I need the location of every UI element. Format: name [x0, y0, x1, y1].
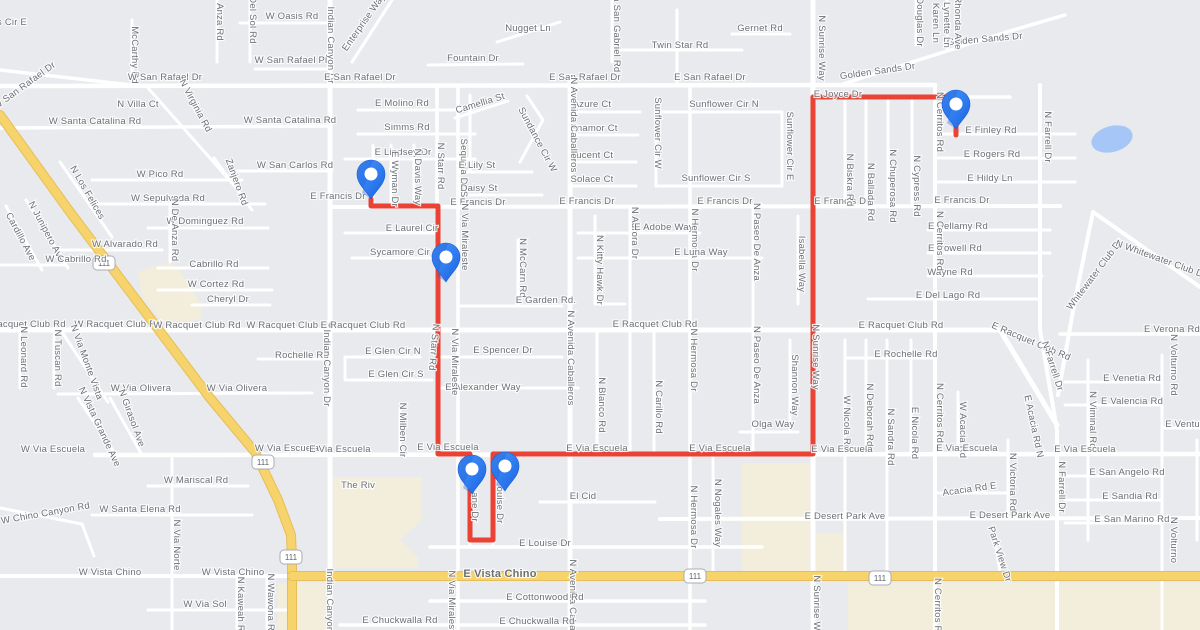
street-label: N Starr Rd [435, 143, 446, 190]
street-label: N Carillo Rd [653, 380, 664, 434]
pin-hole-icon [950, 98, 963, 111]
street-label: W Pico Rd [137, 169, 184, 180]
street-label: Acacia Rd E [942, 480, 997, 498]
street-label: E Rochelle Rd [874, 349, 937, 360]
highway-shield: 111 [280, 550, 302, 564]
street-label: N Sandra Rd [885, 408, 896, 465]
street-label: E Chuckwalla Rd [362, 615, 437, 626]
street-label: s Cir E [0, 17, 27, 28]
street-label: N Kitty Hawk Dr [594, 235, 605, 305]
street-label: N Via Miraleste [459, 203, 470, 270]
street-label: W Santa Catalina Rd [244, 115, 337, 126]
street-label: E Ventura [1165, 419, 1200, 430]
street-label: Del Sol Rd [247, 0, 258, 44]
street-label: N Paseo De Anza [751, 326, 762, 405]
pin-hole-icon [440, 251, 453, 264]
street-label: N Ballada Rd [865, 163, 876, 221]
area-polygon [848, 583, 1200, 630]
map-pin[interactable] [942, 90, 970, 129]
street-label: E Racquet Club Rd [990, 320, 1072, 363]
street-label: N Hermosa Dr [688, 328, 699, 391]
street-label: N Blanco Rd [596, 377, 607, 433]
street-label: N Sunrise Way [816, 15, 827, 81]
street-label: E Wyman Dr [389, 151, 400, 207]
street-label: E Rogers Rd [964, 149, 1021, 160]
street-label: N Farrell Dr [1042, 111, 1053, 162]
street-label: Fountain Dr [447, 53, 499, 64]
street-label: N Aurora Dr [629, 207, 640, 259]
street-label: Cheryl Dr [207, 294, 249, 305]
street-label: W Cortez Rd [188, 279, 245, 290]
street-label: N Sunrise Way [811, 575, 822, 630]
street-label: Anza Rd [214, 3, 225, 41]
street-label: E Via Escuela [417, 442, 479, 453]
street-label: E Desert Park Ave [970, 510, 1051, 521]
street-label: N Via Miraleste [449, 328, 460, 395]
street-label: E Racquet Club Rd [859, 320, 944, 331]
street-label: N Cerritos Rd [934, 383, 945, 443]
highway-shield: 111 [869, 571, 891, 585]
street-label: Sunflower Cir N [689, 99, 759, 110]
street-label: E San Rafael Dr [674, 72, 746, 83]
street-label: W San Rafael Pl [255, 55, 328, 66]
street-label: E Francis Dr [450, 197, 505, 208]
street-label: E Francis Dr [814, 196, 869, 207]
area-polygon [816, 533, 844, 573]
street-label: Sunflower Cir S [682, 173, 751, 184]
street-label: N Victoria Rd [1007, 453, 1018, 511]
street-label: E Glen Cir S [368, 369, 423, 380]
street-label: N Nogales Way [712, 479, 723, 547]
street-label: E Via Escuela [811, 444, 873, 455]
street-label: W Mariscal Rd [164, 475, 228, 486]
street-label: N Avenida Caballeros [565, 310, 576, 405]
street-label: E Spencer Dr [473, 345, 532, 356]
street-label: E San Marino Rd [1094, 514, 1169, 525]
street-label: W Sepulveda Rd [131, 193, 205, 204]
street-label: ane Dr [469, 492, 480, 522]
street-label: E Del Lago Rd [916, 290, 980, 301]
street-label: E Francis Dr [697, 196, 752, 207]
street-label: W Via Sol [183, 599, 226, 610]
pond-water [1088, 121, 1135, 157]
street-label: N Via Norte [171, 519, 182, 570]
highway-shield: 111 [252, 455, 274, 469]
street-label: Olga Way [752, 419, 795, 430]
street-label: Shannon Way [789, 354, 800, 416]
street-label: Isabella Way [796, 236, 807, 292]
street-label: N McCarn Rd [517, 238, 528, 298]
pin-hole-icon [466, 463, 479, 476]
street-label: E Via Escuela [309, 444, 371, 455]
street-label: Cabrillo Rd [189, 259, 238, 270]
street-label: E Valencia Rd [1101, 396, 1163, 407]
map-canvas[interactable]: 111111111111111 s Cir EW Oasis RdMcCarth… [0, 0, 1200, 630]
street-label: N Hermosa Dr [689, 208, 700, 271]
street-label: Solace Ct [571, 174, 614, 185]
street-label: E Desert Park Ave [805, 511, 886, 522]
street-label: N Tuscan Rd [52, 329, 63, 386]
street-label: Karen Ln [930, 3, 941, 43]
street-label: N Cerritos Rd [934, 211, 945, 271]
street-label: Golden Sands Dr [839, 61, 916, 82]
street-label: E Laurel Cir [386, 223, 439, 234]
street-label: N Via Miraleste [446, 570, 457, 630]
street-label: W Racquet Club Rd [74, 319, 161, 330]
street-label: N Chuperosa Rd [887, 149, 898, 223]
street-label: E Francis Dr [934, 195, 989, 206]
street-label: E Francis Dr [559, 196, 614, 207]
street-label: E San Angelo Rd [1089, 467, 1164, 478]
street-label: N Cypress Rd [911, 155, 922, 217]
pin-hole-icon [365, 168, 378, 181]
street-label: N Viminal Rd [1087, 391, 1098, 449]
street-label: E Finley Rd [965, 125, 1016, 136]
pin-hole-icon [499, 460, 512, 473]
street-label: E Glen Cir N [365, 346, 421, 357]
street-label: N Whitewater Club Dr [1114, 238, 1200, 281]
street-label: Camellia St [454, 91, 506, 116]
street-label: Lynette Ln [941, 2, 952, 48]
street-label: Sunflower Cir W [652, 97, 663, 169]
highway-shield: 111 [684, 569, 706, 583]
street-label: Indian Canyon Dr [324, 568, 335, 630]
street-label: Twin Star Rd [652, 40, 709, 51]
street-label: E Chuckwalla Rd [499, 616, 574, 627]
shield-number: 111 [689, 572, 702, 581]
street-label: Sunflower Cir E [784, 112, 795, 181]
street-label: E San Rafael Dr [549, 72, 621, 83]
shield-number: 111 [257, 458, 270, 467]
map-graphics: 111111111111111 s Cir EW Oasis RdMcCarth… [0, 0, 1200, 630]
street-label: Nugget Ln [505, 23, 551, 34]
street-label: N Leonard Rd [18, 326, 29, 388]
street-label: N Cerritos Rd [932, 578, 943, 630]
pond [1088, 121, 1135, 157]
street-label: Via San Gabriel Rd [611, 0, 622, 72]
street-label: W Vista Chino [202, 567, 265, 578]
street-label: E Racquet Club Rd [613, 319, 698, 330]
street-label: N Villa Ct [117, 99, 159, 110]
shield-number: 111 [874, 574, 887, 583]
street-label: W Oasis Rd [266, 11, 319, 22]
street-label: N Biskra Rd [844, 154, 855, 207]
street-label: Daisy St [461, 183, 498, 194]
street-label: Racquet Club Rd [0, 319, 66, 330]
street-label: W Cabrillo Rd [45, 254, 106, 265]
area-polygon [278, 583, 326, 630]
street-label: E Adobe Way [634, 222, 693, 233]
street-label: E San Rafael Dr [324, 72, 396, 83]
street-label: N Avenida Caballeros [568, 77, 579, 172]
street-label: N Davis Way [412, 149, 423, 206]
street-label: E Molino Rd [375, 98, 429, 109]
street-label: N De Anza Rd [169, 199, 180, 262]
street-label: W Nicola Rd [841, 396, 852, 451]
street-label: E Venetia Rd [1103, 373, 1161, 384]
road-line [428, 64, 523, 65]
street-label: El Cid [570, 491, 597, 502]
street-label: W San Rafael Dr [128, 72, 202, 83]
street-label: W Santa Elena Rd [99, 504, 180, 515]
street-label: W Via Olivera [207, 383, 268, 394]
street-label: E Garden Rd. [516, 295, 577, 306]
street-label: E Luna Way [674, 247, 727, 258]
street-label: Gernet Rd [737, 23, 783, 34]
street-label: Sycamore Cir [370, 247, 430, 258]
street-label: W Vista Chino [79, 567, 142, 578]
street-label: ouise Dr [494, 487, 505, 524]
street-label: E Lily St [459, 160, 496, 171]
street-label: E Via Escuela [1054, 444, 1116, 455]
map-pin[interactable] [458, 455, 486, 494]
street-label: N Kaweah Rd [235, 577, 246, 630]
street-label: N Wawona Rd [265, 573, 276, 630]
street-label: W Alvarado Rd [92, 239, 158, 250]
street-label: The Riv [341, 480, 375, 491]
street-label: E Joyce Dr [814, 89, 862, 100]
street-label: E Sandia Rd [1102, 491, 1158, 502]
street-label: N Milben Cir [397, 403, 408, 458]
street-label: N Farrell Dr [1056, 461, 1067, 512]
street-label: Cardillo Ave [3, 211, 38, 263]
street-label: E Via Escuela [566, 443, 628, 454]
street-label: E Louise Dr [519, 538, 571, 549]
street-label: E Nicola Rd [909, 407, 920, 459]
street-label: E Cottonwood Rd [506, 592, 583, 603]
street-label: N Hermosa Dr [688, 485, 699, 548]
street-label: Indian Canyon Dr [321, 329, 332, 406]
street-label: N Volturno Rd [1168, 334, 1179, 396]
street-label: N Deborah Rd [864, 383, 875, 446]
street-label: E Francis Dr [310, 191, 365, 202]
street-label: Rhonda Ave [952, 0, 963, 50]
street-label: N Paseo De Anza [751, 203, 762, 282]
street-label: E Vista Chino [463, 568, 536, 580]
street-label: E Via Escuela [936, 443, 998, 454]
street-label: Zanjero Rd [223, 157, 250, 207]
street-label: W Via Escuela [21, 444, 86, 455]
street-label: Rochelle Rd [275, 350, 329, 361]
street-label: N Sunrise Way [810, 324, 821, 390]
street-label: Sundance Cir W [515, 105, 558, 174]
street-label: W Santa Catalina Rd [49, 116, 142, 127]
street-label: W Racquet Club Rd [153, 320, 240, 331]
street-label: W San Carlos Rd [257, 160, 333, 171]
street-label: E Via Escuela [689, 443, 751, 454]
street-label: Simms Rd [384, 122, 429, 133]
street-label: E Hildy Ln [967, 173, 1012, 184]
street-label: E Racquet Club Rd [321, 320, 406, 331]
street-label: Douglas Dr [914, 0, 925, 47]
shield-number: 111 [285, 553, 298, 562]
